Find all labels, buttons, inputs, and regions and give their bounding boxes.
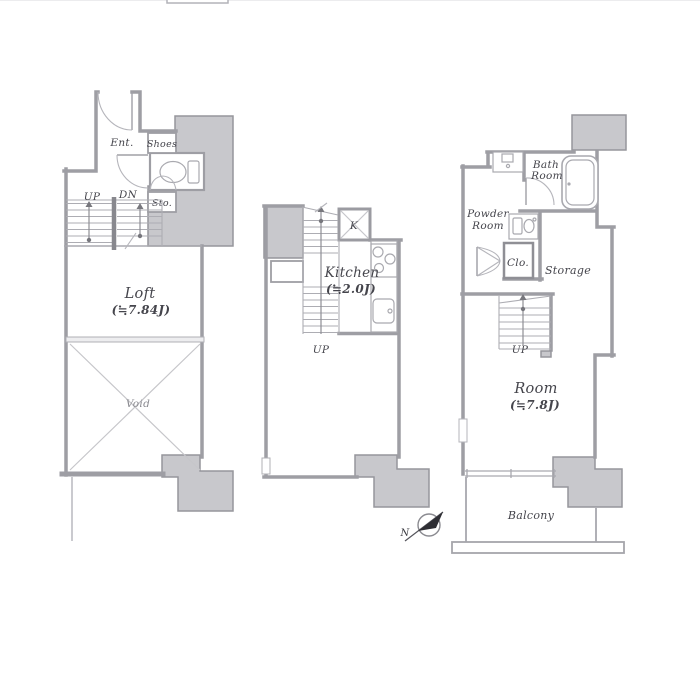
balcony-label: Balcony xyxy=(507,509,555,522)
shoes-label: Shoes xyxy=(147,139,177,150)
toilet-icon xyxy=(509,214,538,239)
plan-right-room-level: Clo. Bath Room Powder Room Storage UP Ro… xyxy=(452,115,626,553)
wall-stub xyxy=(541,351,551,357)
compass-n-label: N xyxy=(399,528,410,539)
entrance-door-arc xyxy=(98,92,132,130)
k-shaft-label: K xyxy=(349,220,359,232)
storage-label: Storage xyxy=(545,264,591,277)
up-label: UP xyxy=(84,191,101,203)
ent-label: Ent. xyxy=(109,137,133,149)
bath-door-arc xyxy=(526,178,554,205)
pillar-block xyxy=(162,455,233,511)
cropped-title-box xyxy=(167,0,228,3)
plan-middle-kitchen-level: K Kitchen (≒2.0J) UP xyxy=(262,203,429,507)
loft-size-label: (≒7.84J) xyxy=(112,303,171,317)
dn-label: DN xyxy=(118,189,138,201)
up-label: UP xyxy=(313,344,330,356)
pillar-block xyxy=(264,206,303,258)
floorplan-drawing: Shoes Sto. Ent. UP DN Loft (≒7.84J) Void xyxy=(0,0,700,700)
hall-door-arc xyxy=(117,155,148,188)
void-label: Void xyxy=(126,398,150,410)
plan-left-loft-level: Shoes Sto. Ent. UP DN Loft (≒7.84J) Void xyxy=(62,92,233,541)
closet-door-arcs xyxy=(477,247,500,276)
closet-label: Clo. xyxy=(507,257,529,269)
window-wall xyxy=(465,469,556,478)
kitchen-name-label: Kitchen xyxy=(324,265,380,281)
wall-niche xyxy=(271,261,303,282)
room-name-label: Room xyxy=(513,381,557,397)
pillar-block xyxy=(355,455,429,507)
loft-name-label: Loft xyxy=(124,286,156,302)
wall-window-gap xyxy=(459,419,467,442)
powder-room-label-line2: Room xyxy=(471,220,504,232)
kitchen-size-label: (≒2.0J) xyxy=(326,282,376,296)
powder-room-label-line1: Powder xyxy=(466,208,509,220)
pillar-block xyxy=(572,115,626,150)
floorplan-canvas: Shoes Sto. Ent. UP DN Loft (≒7.84J) Void xyxy=(0,0,700,700)
pillar-block xyxy=(553,457,622,507)
room-size-label: (≒7.8J) xyxy=(510,398,560,412)
bathtub-icon xyxy=(562,156,598,209)
loft-void-divider xyxy=(66,337,204,342)
north-compass: N xyxy=(399,512,443,541)
balcony-edge-bar xyxy=(452,542,624,553)
up-label: UP xyxy=(512,344,529,356)
bathroom-label-line2: Room xyxy=(530,170,563,182)
wall-window-gap xyxy=(262,458,270,474)
washbasin-icon xyxy=(493,152,523,172)
